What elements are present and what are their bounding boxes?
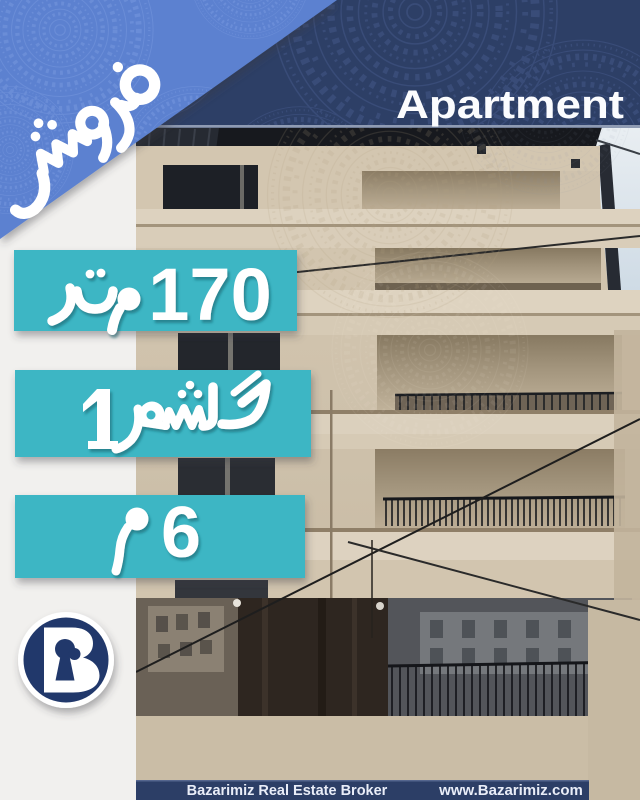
svg-text:170: 170 xyxy=(148,253,271,336)
svg-text:www.Bazarimiz.com: www.Bazarimiz.com xyxy=(438,782,583,799)
svg-text:6: 6 xyxy=(161,493,201,573)
svg-text:Apartment: Apartment xyxy=(396,83,624,127)
svg-text:Bazarimiz Real Estate Broker: Bazarimiz Real Estate Broker xyxy=(187,783,388,799)
